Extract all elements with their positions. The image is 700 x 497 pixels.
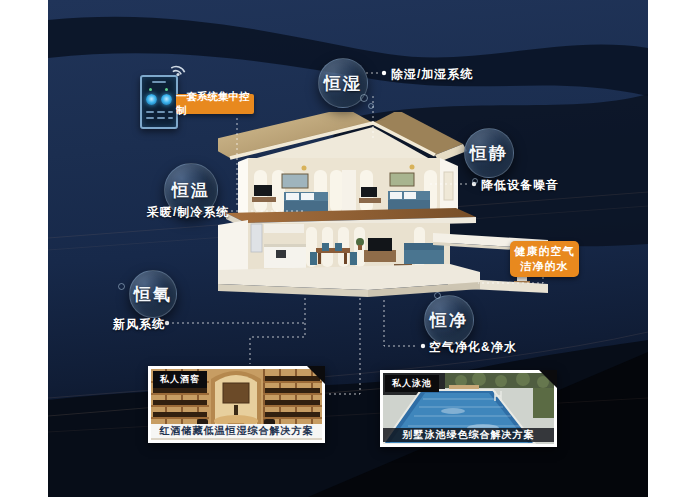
bubble-constant-quiet-label: 恒静	[470, 142, 508, 165]
bubble-constant-humidity-label: 恒湿	[324, 72, 362, 95]
wifi-icon	[167, 61, 187, 78]
bubble-constant-temperature-label: 恒温	[172, 179, 210, 202]
note-dehumidify-system: 除湿/加湿系统	[391, 66, 473, 83]
poster-stage: 一套系统集中控制 恒湿 恒静 恒温 恒氧 恒净 除湿/加湿系统 降低设备噪音 采…	[0, 0, 700, 497]
control-system-label-text: 一套系统集中控制	[176, 90, 254, 118]
note-air-water-purification: 空气净化&净水	[429, 339, 517, 356]
wine-cellar-caption: 红酒储藏低温恒湿综合解决方案	[151, 424, 322, 438]
decorative-bubble	[472, 178, 478, 184]
wine-cellar-tag: 私人酒窖	[153, 371, 207, 388]
bubble-constant-oxygen-label: 恒氧	[134, 283, 172, 306]
control-system-label: 一套系统集中控制	[176, 94, 254, 114]
note-noise-reduction: 降低设备噪音	[481, 177, 559, 194]
decorative-bubble	[360, 94, 368, 102]
control-panel-device	[140, 75, 178, 129]
healthy-air-water-box: 健康的空气 洁净的水	[510, 241, 579, 277]
poster-canvas: 一套系统集中控制 恒湿 恒静 恒温 恒氧 恒净 除湿/加湿系统 降低设备噪音 采…	[48, 0, 648, 497]
note-heating-cooling-system: 采暖/制冷系统	[147, 204, 229, 221]
card-private-pool: 私人泳池 别墅泳池绿色综合解决方案	[380, 370, 557, 447]
bubble-constant-purity-label: 恒净	[430, 309, 468, 332]
clean-water-line: 洁净的水	[521, 259, 569, 274]
card-private-wine-cellar: 私人酒窖 红酒储藏低温恒湿综合解决方案	[148, 366, 325, 443]
note-fresh-air-system: 新风系统	[113, 316, 165, 333]
pool-caption: 别墅泳池绿色综合解决方案	[383, 428, 554, 442]
bubble-constant-quiet: 恒静	[464, 128, 514, 178]
decorative-bubble	[434, 292, 441, 299]
bubble-constant-oxygen: 恒氧	[129, 270, 177, 318]
wine-cellar-corner-ribbon	[307, 366, 325, 384]
decorative-bubble	[368, 103, 374, 109]
pool-tag: 私人泳池	[385, 375, 439, 392]
bubble-constant-purity: 恒净	[424, 295, 474, 345]
healthy-air-line: 健康的空气	[515, 244, 575, 259]
pool-corner-ribbon	[539, 370, 557, 388]
decorative-bubble	[118, 283, 125, 290]
